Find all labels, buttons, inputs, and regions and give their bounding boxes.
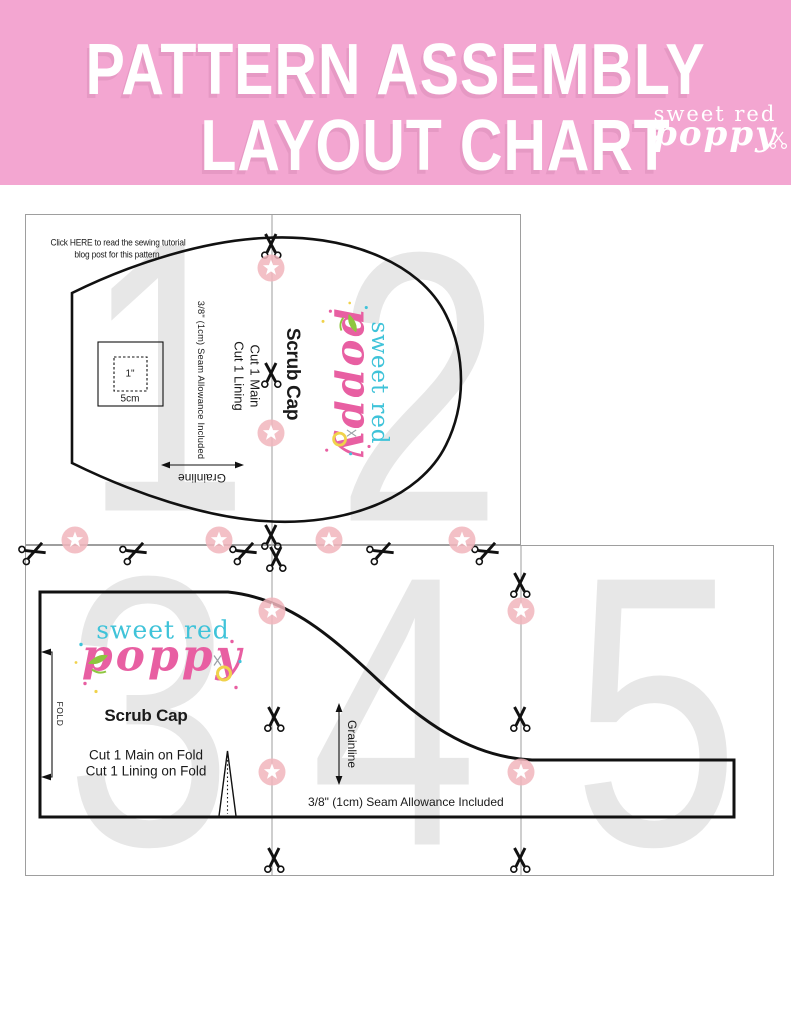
cut2-bottom: Cut 1 Lining on Fold <box>86 764 207 779</box>
scissors-icon <box>265 848 284 872</box>
scissors-icon <box>511 848 530 872</box>
scissors-icon <box>366 539 395 565</box>
registration-star-icon <box>508 759 535 786</box>
seam-allowance-label-top: 3/8" (1cm) Seam Allowance Included <box>196 301 206 459</box>
scissors-icon <box>471 539 500 565</box>
grainline-arrow-bottom <box>336 703 343 785</box>
registration-star-icon <box>62 527 89 554</box>
grainline-label-top: Grainline <box>178 471 226 485</box>
fold-label: FOLD <box>55 701 65 726</box>
scissors-icon <box>18 539 47 565</box>
brand-logo-crown-piece: sweet red poppy <box>313 296 391 471</box>
piece-title-top: Scrub Cap <box>281 328 303 420</box>
dart-marking <box>219 751 236 816</box>
scissors-icon <box>511 707 530 731</box>
seam-allowance-label-bottom: 3/8" (1cm) Seam Allowance Included <box>308 795 504 809</box>
piece-title-bottom: Scrub Cap <box>104 706 187 726</box>
fold-bracket <box>41 649 52 781</box>
grainline-arrow-top <box>161 462 244 469</box>
tutorial-link-line1: Click HERE to read the sewing tutorial <box>50 237 185 248</box>
registration-star-icon <box>206 527 233 554</box>
cut-instructions-bottom: Cut 1 Main on FoldCut 1 Lining on Fold <box>86 748 207 781</box>
brand-name-bottom: poppy <box>68 640 258 674</box>
cut1-top: Cut 1 Main <box>248 345 263 408</box>
scissors-icon <box>229 539 258 565</box>
cut-instructions-top: Cut 1 MainCut 1 Lining <box>231 341 262 410</box>
test-square-outer-label: 5cm <box>121 394 140 405</box>
registration-star-icon <box>449 527 476 554</box>
registration-star-icon <box>259 598 286 625</box>
cut1-bottom: Cut 1 Main on Fold <box>89 748 203 763</box>
tutorial-link-line2: blog post for this pattern. <box>74 249 161 260</box>
test-square-inner-label: 1" <box>125 369 134 380</box>
brand-logo-header: sweet red poppy <box>640 104 790 148</box>
page-title-line1: PATTERN ASSEMBLY <box>71 34 720 106</box>
brand-name-bottom: poppy <box>339 296 371 471</box>
scissors-icon <box>262 363 281 387</box>
scissors-icon <box>640 104 790 164</box>
cut2-top: Cut 1 Lining <box>232 341 247 410</box>
brand-logo-band-piece: sweet red poppy <box>68 618 258 703</box>
scissors-icon <box>511 573 530 597</box>
registration-star-icon <box>258 255 285 282</box>
registration-star-icon <box>259 759 286 786</box>
header-banner: PATTERN ASSEMBLY LAYOUT CHART sweet red … <box>0 0 791 185</box>
tutorial-link-note[interactable]: Click HERE to read the sewing tutorial b… <box>48 237 189 260</box>
registration-star-icon <box>508 598 535 625</box>
scissors-icon <box>265 707 284 731</box>
scissors-icon <box>119 539 148 565</box>
registration-star-icon <box>316 527 343 554</box>
grainline-label-bottom: Grainline <box>345 720 359 768</box>
registration-star-icon <box>258 420 285 447</box>
pattern-assembly-layout-chart: PATTERN ASSEMBLY LAYOUT CHART sweet red … <box>0 0 791 1024</box>
scissors-icon <box>267 547 286 571</box>
